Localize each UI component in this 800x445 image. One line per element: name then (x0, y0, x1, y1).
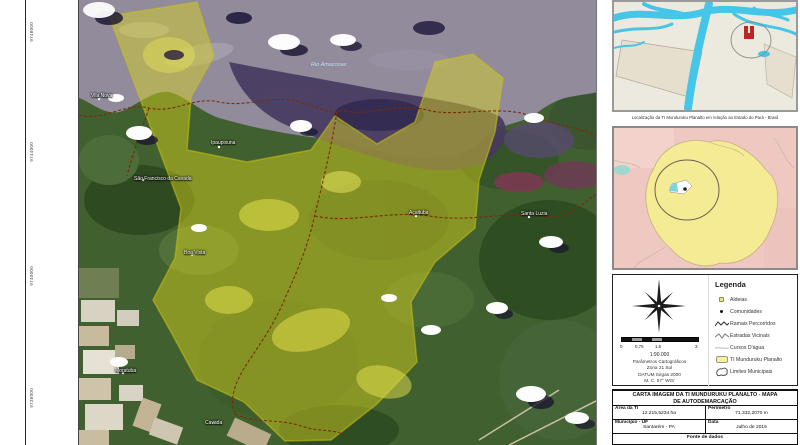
municipio-date-row: Município - UF Santarém - PA Data Julho … (613, 420, 797, 434)
data-source-label: Fonte de dados (613, 434, 797, 440)
lake-extension (504, 122, 574, 158)
municipio-cell: Município - UF Santarém - PA (613, 420, 705, 433)
scale-tick: 3 (695, 344, 697, 349)
water-patch (614, 165, 630, 175)
legend-item: Ramais Percorridos (713, 318, 797, 329)
scale-ticks: 0 0,75 1,5 3 (613, 344, 706, 350)
coordinate-label: 9744000 (29, 142, 34, 162)
municipio-value: Santarém - PA (615, 425, 703, 430)
legend-label: Estradas Vicinais (730, 333, 770, 339)
area-cell: Área da TI 12.215,5234 ha (613, 406, 705, 419)
trail-line-icon (713, 320, 730, 328)
legend: Legenda Aldeias Comunidades Ramais Perco… (708, 275, 798, 387)
date-cell: Data Julho de 2015 (705, 420, 797, 433)
place-label: Vila Nova (91, 93, 112, 99)
legend-item: Aldeias (713, 294, 797, 305)
legend-label: Limites Municipais (730, 369, 772, 375)
map-title: CARTA IMAGEM DA TI MUNDURUKU PLANALTO - … (613, 391, 797, 406)
legend-item: Limites Municipais (713, 366, 797, 377)
legend-label: Comunidades (730, 309, 762, 315)
map-document: { "sheet": { "coord_labels": ["9748000",… (0, 0, 800, 445)
place-label: Ipaupixuna (211, 140, 235, 146)
place-label: São Francisco da Cavada (134, 176, 192, 182)
place-label: Santa Luzia (521, 211, 547, 217)
legend-item: TI Munduruku Planalto (713, 354, 797, 365)
map-tools-box: 0 0,75 1,5 3 1:90.000 Parâmetros Cartogr… (612, 274, 798, 386)
place-label: Açaituba (409, 210, 428, 216)
scale-bar (621, 337, 699, 342)
perimeter-cell: Perímetro 71.332,2070 m (705, 406, 797, 419)
area-value: 12.215,5234 ha (615, 411, 703, 416)
date-value: Julho de 2015 (708, 425, 795, 430)
area-perimeter-row: Área da TI 12.215,5234 ha Perímetro 71.3… (613, 406, 797, 420)
legend-label: Ramais Percorridos (730, 321, 776, 327)
river-label: Rio Amazonas (311, 62, 347, 68)
coordinate-label: 9736000 (29, 388, 34, 408)
inset-map-amazon (612, 0, 798, 112)
legend-label: Aldeias (730, 297, 747, 303)
inset-para-svg (614, 128, 796, 268)
aldeia-icon (713, 297, 730, 302)
floodplain-magenta (494, 172, 544, 192)
municipal-limits-icon (713, 367, 730, 377)
map-info-table: CARTA IMAGEM DA TI MUNDURUKU PLANALTO - … (612, 389, 798, 445)
legend-item: Cursos D'água (713, 342, 797, 353)
params-meridian: M. C. 57° WGr (613, 378, 706, 384)
scale-ratio: 1:90.000 (613, 352, 706, 358)
compass-rose-icon (631, 278, 687, 334)
inset-caption: Localização da TI Munduruku Planalto em … (612, 115, 798, 120)
ti-center-dot (683, 187, 687, 191)
road-line-icon (713, 332, 730, 340)
cartographic-parameters: Parâmetros Cartográficos Zona 21 Sul DAT… (613, 359, 706, 385)
legend-item: Estradas Vicinais (713, 330, 797, 341)
place-label: Moratuba (115, 368, 136, 374)
legend-item: Comunidades (713, 306, 797, 317)
coordinate-label: 9748000 (29, 22, 34, 42)
inset-map-para (612, 126, 798, 270)
inset-amazon-svg (614, 2, 796, 110)
perimeter-value: 71.332,2070 m (708, 411, 795, 416)
legend-label: Cursos D'água (730, 345, 764, 351)
satellite-map: Rio Amazonas Vila Nova São Francisco da … (78, 0, 597, 445)
ti-area-icon (713, 356, 730, 363)
legend-title: Legenda (715, 280, 746, 289)
legend-label: TI Munduruku Planalto (730, 357, 782, 363)
scale-tick: 0,75 (635, 344, 644, 349)
coordinate-label: 9740000 (29, 266, 34, 286)
place-label: Cavada (205, 420, 222, 426)
orientation-scale-column: 0 0,75 1,5 3 1:90.000 Parâmetros Cartogr… (613, 275, 706, 387)
scale-tick: 1,5 (655, 344, 661, 349)
place-label: Boa Vista (184, 250, 205, 256)
scale-tick: 0 (620, 344, 622, 349)
community-dot-icon (713, 310, 730, 314)
watercourse-line-icon (713, 345, 730, 351)
